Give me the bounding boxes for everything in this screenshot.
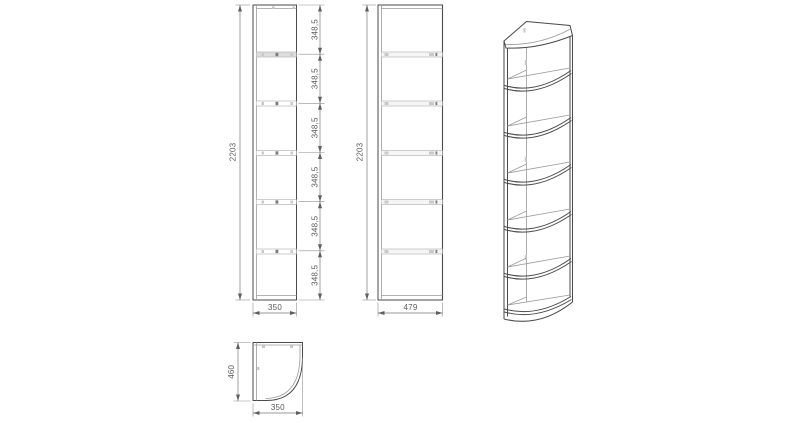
fitting-mark — [293, 6, 296, 9]
iso-shelf — [505, 162, 572, 185]
shelf-line — [257, 249, 297, 254]
fitting-mark — [290, 346, 293, 349]
shelf-line — [257, 52, 297, 57]
plan-outline — [253, 343, 303, 401]
side-view — [378, 5, 443, 300]
shelf-spacing-label: 348,5 — [311, 166, 320, 187]
iso-bottom-panel — [504, 295, 573, 321]
front-height-label: 2203 — [229, 142, 238, 161]
shelf-line — [382, 101, 443, 106]
shelf-spacing-label: 348,5 — [311, 215, 320, 236]
shelf-line — [257, 151, 297, 156]
shelf-line — [382, 200, 443, 205]
fitting-mark — [272, 6, 275, 9]
plan-view — [253, 343, 303, 401]
shelf-spacing-label: 348,5 — [311, 19, 320, 40]
shelf-line — [257, 200, 297, 205]
shelf-line — [382, 151, 443, 156]
drawing-canvas: 2203 348,5 348,5 348,5 348,5 348,5 348,5 — [0, 0, 800, 423]
fitting-mark — [262, 346, 265, 349]
iso-shelf — [505, 68, 572, 91]
iso-shelf — [505, 209, 572, 232]
shelf-spacing-label: 348,5 — [311, 68, 320, 89]
shelf-line — [257, 101, 297, 106]
shelf-spacing-label: 348,5 — [311, 265, 320, 286]
shelf-line — [382, 249, 443, 254]
front-shelf-spacing-chain: 348,5 348,5 348,5 348,5 348,5 348,5 — [299, 5, 325, 300]
iso-shelf — [505, 256, 572, 279]
front-width-dimension: 350 — [253, 303, 297, 317]
side-height-dimension: 2203 — [356, 5, 377, 300]
fitting-mark — [525, 255, 527, 260]
shelf-line — [382, 52, 443, 57]
front-height-dimension: 2203 — [229, 5, 251, 300]
side-height-label: 2203 — [356, 142, 365, 161]
plan-depth-label: 460 — [227, 364, 236, 378]
front-view — [253, 5, 297, 300]
isometric-view — [504, 22, 573, 322]
side-depth-dimension: 479 — [378, 303, 443, 317]
technical-drawing: 2203 348,5 348,5 348,5 348,5 348,5 348,5 — [0, 0, 800, 423]
fitting-mark — [524, 28, 526, 33]
plan-width-label: 350 — [271, 403, 285, 412]
shelf-spacing-label: 348,5 — [311, 117, 320, 138]
fitting-mark — [257, 367, 260, 370]
plan-depth-dimension: 460 — [227, 343, 251, 402]
iso-shelf — [505, 115, 572, 138]
fitting-mark — [525, 157, 527, 162]
fitting-mark — [525, 60, 527, 65]
side-depth-label: 479 — [404, 303, 418, 312]
iso-top-panel — [504, 22, 573, 49]
front-width-label: 350 — [268, 303, 282, 312]
